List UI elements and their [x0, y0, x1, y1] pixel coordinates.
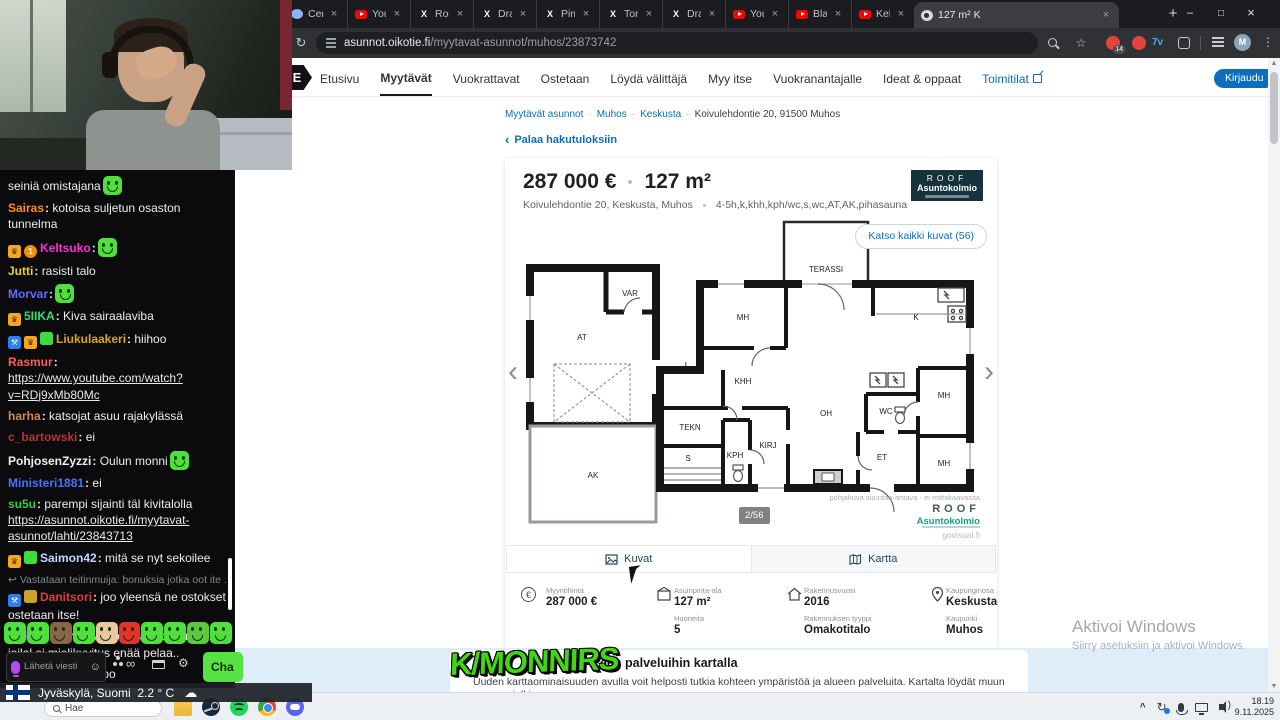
tab-list: Cent - YouTube Rockstar DramaAl Pimeys N…	[284, 0, 1119, 28]
streamer	[78, 18, 228, 170]
mod-badge-icon	[8, 336, 21, 349]
weather-location: Jyväskylä, Suomi	[38, 686, 131, 700]
tab-close-icon[interactable]	[706, 8, 718, 20]
fact-value: Omakotitalo	[804, 623, 872, 637]
tab[interactable]: DramaAl	[662, 0, 725, 28]
tab-close-icon[interactable]	[832, 8, 844, 20]
tab-close-icon[interactable]	[643, 8, 655, 20]
carousel-prev-icon[interactable]	[508, 357, 518, 387]
room-label: TERASSI	[809, 265, 843, 274]
tab[interactable]: YouTube	[725, 0, 788, 28]
sub-badge-icon	[24, 336, 37, 349]
finland-flag-icon	[6, 685, 30, 700]
youtube-favicon	[859, 10, 871, 19]
tab[interactable]: Blashemi	[788, 0, 851, 28]
tab[interactable]: DramaAl	[473, 0, 536, 28]
tab[interactable]: Rockstar	[410, 0, 473, 28]
tab-close-icon[interactable]	[580, 8, 592, 20]
main-nav: Etusivu Myytävät Vuokrattavat Ostetaan L…	[320, 58, 1042, 97]
window-light	[0, 0, 66, 112]
chat-message: seiniä omistajana	[8, 176, 226, 195]
url-path: /myytavat-asunnot/muhos/23873742	[430, 37, 616, 49]
system-tray: 18.19 9.11.2025	[1140, 693, 1274, 720]
room-label: AT	[577, 333, 587, 342]
x-favicon	[481, 8, 493, 20]
smiley-emote	[98, 238, 117, 257]
microphone-icon[interactable]	[11, 661, 20, 674]
screen: Cent - YouTube Rockstar DramaAl Pimeys N…	[0, 0, 1280, 720]
youtube-favicon	[733, 10, 745, 19]
chat-message: Jutti rasisti talo	[8, 263, 226, 279]
chat-settings-icon[interactable]	[178, 656, 189, 670]
nav-ideat-oppaat[interactable]: Ideat & oppaat	[883, 61, 961, 95]
breadcrumb-link[interactable]: Keskusta	[640, 109, 681, 120]
tab-close-icon[interactable]	[391, 8, 403, 20]
chat-message: Morvar	[8, 284, 226, 303]
toolbar-divider	[1200, 36, 1201, 50]
scroll-up-icon[interactable]	[1270, 60, 1278, 67]
chat-message: harha katsojat asuu rajakylässä	[8, 408, 226, 424]
tab-close-icon[interactable]	[517, 8, 529, 20]
emote-menu-icon[interactable]	[113, 662, 117, 666]
display-icon[interactable]	[1195, 703, 1208, 712]
tab-close-icon[interactable]	[454, 8, 466, 20]
mod-badge-icon	[8, 594, 21, 607]
image-icon	[605, 553, 618, 566]
room-label: MH	[737, 313, 750, 322]
nav-myytavat[interactable]: Myytävät	[380, 60, 431, 96]
nav-ostetaan[interactable]: Ostetaan	[541, 61, 590, 95]
emote-button[interactable]	[141, 622, 163, 644]
listing-rooms-spec: 4-5h,k,khh,kph/wc,s,wc,AT,AK,pihasauna	[716, 199, 907, 211]
chat-message: PohjosenZyzzi Oulun monni	[8, 451, 226, 470]
fact-value: 5	[674, 623, 704, 637]
floorplan-note: pohjakuva suuntaa-antava - ei mittakaava…	[829, 493, 980, 502]
smiley-emote	[103, 176, 122, 195]
back-to-results-link[interactable]: Palaa hakutuloksiin	[505, 132, 617, 147]
listing-card: 287 000 € 127 m² Koivulehdontie 20, Kesk…	[505, 158, 997, 650]
floorplan-brand: ROOF	[932, 503, 980, 515]
nav-toimitilat[interactable]: Toimitilat	[982, 61, 1042, 95]
update-icon[interactable]	[1157, 700, 1167, 714]
frog-badge-icon	[40, 332, 53, 345]
sub-badge-icon	[8, 313, 21, 326]
sub-badge-icon	[8, 555, 21, 568]
chat-link[interactable]: https://asunnot.oikotie.fi/myytavat-asun…	[8, 513, 189, 543]
tab-close-icon[interactable]	[769, 8, 781, 20]
tab[interactable]: YouTube	[347, 0, 410, 28]
fact-value: 127 m²	[674, 595, 722, 609]
duck-badge-icon	[24, 590, 37, 603]
coin-badge-icon	[24, 245, 37, 258]
weather-widget: Jyväskylä, Suomi 2.2 ° C	[0, 683, 312, 702]
playlist-icon[interactable]	[1212, 37, 1224, 39]
chat-message: Keltsuko	[8, 238, 226, 258]
floorplan-image[interactable]: VAR AT AK TERASSI MH K KHH TEKN S KPH KI…	[518, 218, 978, 530]
fact-value: Muhos	[946, 623, 983, 637]
bookmark-star-icon[interactable]	[1072, 35, 1090, 51]
emote-button[interactable]	[210, 622, 232, 644]
emoji-picker-icon[interactable]	[90, 661, 101, 673]
chat-scrollbar-thumb[interactable]	[228, 558, 232, 610]
adblock-extension-icon[interactable]: 14	[1106, 36, 1120, 50]
nav-etusivu[interactable]: Etusivu	[320, 61, 359, 95]
floorplan-credit: govisual.fi	[942, 530, 980, 540]
chat-message: c_bartowski ei	[8, 429, 226, 445]
webcam-overlay	[0, 0, 292, 170]
room-label: KIRJ	[759, 441, 776, 450]
chat-message: 5IIKA Kiva sairaalaviba	[8, 308, 226, 326]
frog-badge-icon	[24, 551, 37, 564]
listing-price: 287 000 €	[523, 170, 616, 194]
taskbar-search[interactable]: Hae	[44, 700, 162, 717]
nav-vuokrattavat[interactable]: Vuokrattavat	[453, 61, 520, 95]
emote-quick-row	[4, 622, 232, 648]
breadcrumb-link[interactable]: Myytävät asunnot	[505, 109, 583, 120]
store-icon[interactable]	[152, 660, 165, 669]
room-label: AK	[588, 471, 599, 480]
chat-link[interactable]: https://www.youtube.com/watch?v=RDj9xMb8…	[8, 371, 183, 401]
fact-value: 287 000 €	[546, 595, 597, 609]
speaker-icon[interactable]	[1219, 704, 1224, 710]
tray-expand-icon[interactable]	[1140, 702, 1146, 713]
chat-message: Rasmur https://www.youtube.com/watch?v=R…	[8, 354, 226, 403]
page-scrollbar[interactable]	[1268, 58, 1280, 692]
scrollbar-thumb[interactable]	[1270, 72, 1278, 144]
agency-logo[interactable]: ROOF Asuntokolmio	[911, 170, 983, 201]
reply-arrow-icon	[8, 574, 17, 586]
nav-vuokranantajalle[interactable]: Vuokranantajalle	[773, 61, 862, 95]
fact-value: Keskusta	[946, 595, 997, 609]
photo-counter: 2/56	[739, 507, 770, 524]
x-favicon	[670, 8, 682, 20]
nav-loyda-valittaja[interactable]: Löydä välittäjä	[610, 61, 687, 95]
oikotie-favicon	[921, 10, 933, 21]
7tv-extension-icon[interactable]	[1152, 37, 1163, 48]
url-domain: asunnot.oikotie.fi	[344, 37, 430, 49]
cloud-icon	[184, 685, 197, 701]
search-icon	[53, 705, 60, 712]
tune-icon[interactable]	[326, 42, 336, 44]
smiley-emote	[170, 451, 189, 470]
browser-menu-icon[interactable]	[1262, 35, 1274, 49]
emote-button[interactable]	[27, 622, 49, 644]
room-label: WC	[879, 407, 893, 416]
bttv-icon[interactable]	[126, 656, 135, 671]
fact-value: 2016	[804, 595, 855, 609]
tab-close-icon[interactable]	[1100, 9, 1112, 21]
carousel-next-icon[interactable]	[984, 357, 994, 387]
sub-badge-icon	[8, 245, 21, 258]
listing-size: 127 m²	[644, 170, 711, 194]
tab[interactable]: Pimeys N	[536, 0, 599, 28]
euro-icon	[521, 587, 536, 602]
site-favicon	[291, 9, 303, 19]
weather-temp: 2.2 ° C	[137, 686, 174, 700]
chevron-left-icon	[505, 132, 509, 147]
youtube-favicon	[796, 10, 808, 19]
chat-send-button[interactable]: Cha	[203, 652, 243, 682]
window-close-button[interactable]	[1236, 0, 1266, 28]
room-label: KHH	[735, 377, 752, 386]
listing-address: Koivulehdontie 20, Keskusta, Muhos	[523, 199, 693, 211]
room-label: MH	[938, 391, 951, 400]
external-link-icon	[1033, 74, 1042, 83]
view-all-photos-button[interactable]: Katso kaikki kuvat (56)	[855, 224, 987, 249]
breadcrumb: Myytävät asunnot Muhos Keskusta Koivuleh…	[505, 109, 840, 120]
extensions-puzzle-icon[interactable]	[1178, 37, 1190, 49]
reload-icon[interactable]	[292, 34, 310, 52]
media-tabs: Kuvat Kartta	[506, 545, 996, 573]
scroll-down-icon[interactable]	[1270, 683, 1278, 690]
room-label: S	[685, 454, 690, 463]
nav-myy-itse[interactable]: Myy itse	[708, 61, 752, 95]
smiley-emote	[55, 284, 74, 303]
extension-icon[interactable]	[1132, 36, 1146, 50]
room-label: MH	[938, 459, 951, 468]
location-pin-icon	[929, 586, 946, 603]
x-favicon	[607, 8, 619, 20]
chat-messages: seiniä omistajana Sairas kotoisa suljetu…	[8, 176, 226, 687]
tab[interactable]: Tommy F	[599, 0, 662, 28]
chat-panel: seiniä omistajana Sairas kotoisa suljetu…	[0, 170, 235, 688]
breadcrumb-current: Koivulehdontie 20, 91500 Muhos	[695, 109, 841, 120]
extension-badge: 14	[1113, 45, 1125, 54]
chat-message: su5u parempi sijainti täl kivitalolla ht…	[8, 496, 226, 545]
address-bar[interactable]: asunnot.oikotie.fi/myytavat-asunnot/muho…	[316, 32, 1038, 54]
tab-close-icon[interactable]	[328, 8, 340, 20]
x-favicon	[544, 8, 556, 20]
teaser-heading: een palveluihin kartalla	[600, 656, 738, 670]
profile-avatar[interactable]: M	[1234, 34, 1251, 51]
chat-input[interactable]: Lähetä viesti	[6, 652, 106, 682]
key-facts: Myyntihinta 287 000 € Asuinpinta-ala 127…	[506, 578, 996, 648]
taskbar-clock[interactable]: 18.19 9.11.2025	[1235, 696, 1274, 718]
room-label: K	[913, 313, 919, 322]
emote-button[interactable]	[164, 622, 186, 644]
room-label: ET	[877, 453, 887, 462]
chat-message: Ministeri1881 ei	[8, 475, 226, 491]
login-button[interactable]: Kirjaudu	[1214, 69, 1275, 88]
youtube-favicon	[355, 10, 367, 19]
tab-close-icon[interactable]	[895, 8, 907, 20]
stream-brand-logo: K/MONNIRS	[449, 641, 619, 683]
emote-button[interactable]	[50, 622, 72, 644]
emote-button[interactable]	[96, 622, 118, 644]
room-label: OH	[820, 409, 832, 418]
tab-active-oikotie[interactable]: 127 m² K	[914, 2, 1119, 28]
room-label: TEKN	[679, 423, 701, 432]
area-icon	[656, 586, 673, 603]
emote-button[interactable]	[119, 622, 141, 644]
emote-button[interactable]	[187, 622, 209, 644]
mouse-cursor	[629, 565, 643, 584]
emote-button[interactable]	[73, 622, 95, 644]
window-minimize-button[interactable]	[1175, 0, 1205, 28]
tray-mic-icon[interactable]	[1178, 703, 1184, 712]
breadcrumb-link[interactable]: Muhos	[597, 109, 627, 120]
chat-message: Sairas kotoisa suljetun osaston tunnelma	[8, 200, 226, 233]
x-favicon	[418, 8, 430, 20]
tab[interactable]: Cent -	[284, 0, 347, 28]
chat-message: Saimon42 mitä se nyt sekoilee	[8, 550, 226, 568]
chat-message: Liukulaakeri hiihoo	[8, 331, 226, 349]
tab-kartta[interactable]: Kartta	[751, 546, 996, 572]
room-label: VAR	[622, 289, 638, 298]
activate-windows-watermark: Aktivoi Windows Siirry asetuksiin ja akt…	[1072, 616, 1246, 654]
tab[interactable]: Kel onni	[851, 0, 914, 28]
window-maximize-button[interactable]	[1206, 0, 1236, 28]
search-icon[interactable]	[1048, 38, 1057, 47]
emote-button[interactable]	[4, 622, 26, 644]
chat-message: Vastataan teitinmuija: bonuksia jotka oo…	[8, 573, 226, 624]
map-icon	[849, 553, 862, 566]
chat-placeholder: Lähetä viesti	[24, 662, 77, 672]
photo-carousel: VAR AT AK TERASSI MH K KHH TEKN S KPH KI…	[506, 215, 996, 545]
house-icon	[786, 586, 803, 603]
room-label: KPH	[727, 451, 744, 460]
reply-context: Vastataan teitinmuija: bonuksia jotka oo…	[8, 573, 226, 587]
